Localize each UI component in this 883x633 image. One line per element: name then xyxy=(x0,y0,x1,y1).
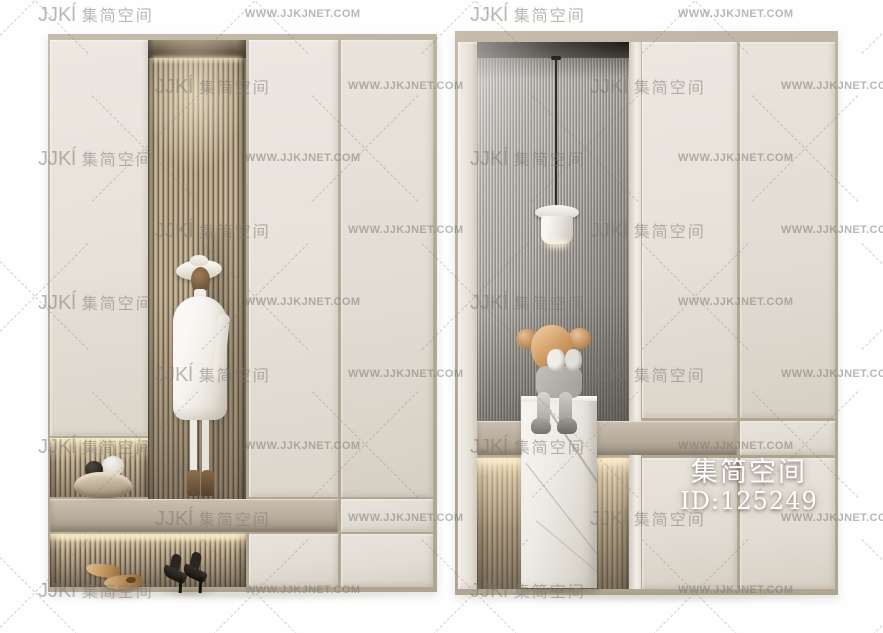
watermark-diagonal-line xyxy=(862,243,883,350)
marble-vein xyxy=(526,463,597,566)
tan-flats xyxy=(84,562,148,596)
heel-left-spike xyxy=(179,578,183,593)
brand-badge: 集简空间 ID:125249 xyxy=(678,458,820,515)
shoe-niche-lighting xyxy=(50,534,246,587)
brand-badge-title: 集简空间 xyxy=(678,458,820,487)
watermark-diagonal-line xyxy=(862,0,883,54)
mannequin-boot-right xyxy=(201,470,214,496)
watermark-logo-text: JJKĺ集简空间 xyxy=(38,2,154,27)
watermark-brand: 集简空间 xyxy=(514,8,586,25)
mannequin-hat-dome xyxy=(190,255,208,266)
left-cabinet-lower-door-mid xyxy=(249,534,338,587)
right-cabinet-band-right-panel xyxy=(740,421,835,455)
kaws-shoe-right xyxy=(557,418,577,434)
left-cabinet-door-mid xyxy=(249,40,338,497)
left-cabinet-shoe-niche xyxy=(50,534,246,587)
floor-shadow-right-unit xyxy=(465,592,830,602)
watermark-logo: JJKĺ xyxy=(38,4,76,26)
mannequin-leg-right xyxy=(202,420,209,472)
right-cabinet-upper-door-left xyxy=(642,42,737,418)
kaws-shoe-left xyxy=(531,418,551,434)
heel-right-spike xyxy=(199,577,203,593)
left-cabinet xyxy=(48,34,437,592)
product-image-canvas: JJKĺ集简空间WWW.JJKJNET.COMJJKĺ集简空间WWW.JJKJN… xyxy=(0,0,883,633)
kaws-figure xyxy=(514,322,594,437)
travertine-bowl xyxy=(74,472,132,498)
right-cabinet-niche-edge xyxy=(629,42,641,589)
watermark-logo: JJKĺ xyxy=(470,4,508,26)
watermark-logo-text: JJKĺ集简空间 xyxy=(470,2,586,27)
watermark-diagonal-line xyxy=(862,539,883,633)
black-high-heels xyxy=(164,552,214,594)
right-cabinet-side-strip xyxy=(458,42,477,589)
watermark-brand: 集简空间 xyxy=(82,8,154,25)
watermark-diagonal-line xyxy=(862,0,883,54)
marble-vein xyxy=(536,520,597,572)
left-cabinet-door-right xyxy=(341,40,433,497)
kaws-hand-left xyxy=(547,349,565,371)
brand-badge-id: ID:125249 xyxy=(678,487,820,515)
right-cabinet-upper-door-right xyxy=(740,42,835,418)
watermark-url-text: WWW.JJKJNET.COM xyxy=(245,8,360,20)
watermark-diagonal-line xyxy=(862,539,883,633)
left-cabinet-bench-band xyxy=(50,499,338,532)
kaws-hand-right xyxy=(565,349,582,371)
stone-bowl-decor xyxy=(74,452,134,498)
mannequin-leg-left xyxy=(190,420,197,472)
watermark-url-text: WWW.JJKJNET.COM xyxy=(678,8,793,20)
watermark-diagonal-line xyxy=(862,243,883,350)
pendant-lamp-glow xyxy=(545,240,569,248)
mannequin-boot-left xyxy=(187,470,200,496)
left-cabinet-lower-door-right xyxy=(341,534,433,587)
pendant-lamp-cord xyxy=(555,58,557,208)
left-cabinet-band-right-panel xyxy=(341,499,433,532)
left-cabinet-door-left xyxy=(50,40,148,436)
mannequin-statue xyxy=(164,248,236,498)
